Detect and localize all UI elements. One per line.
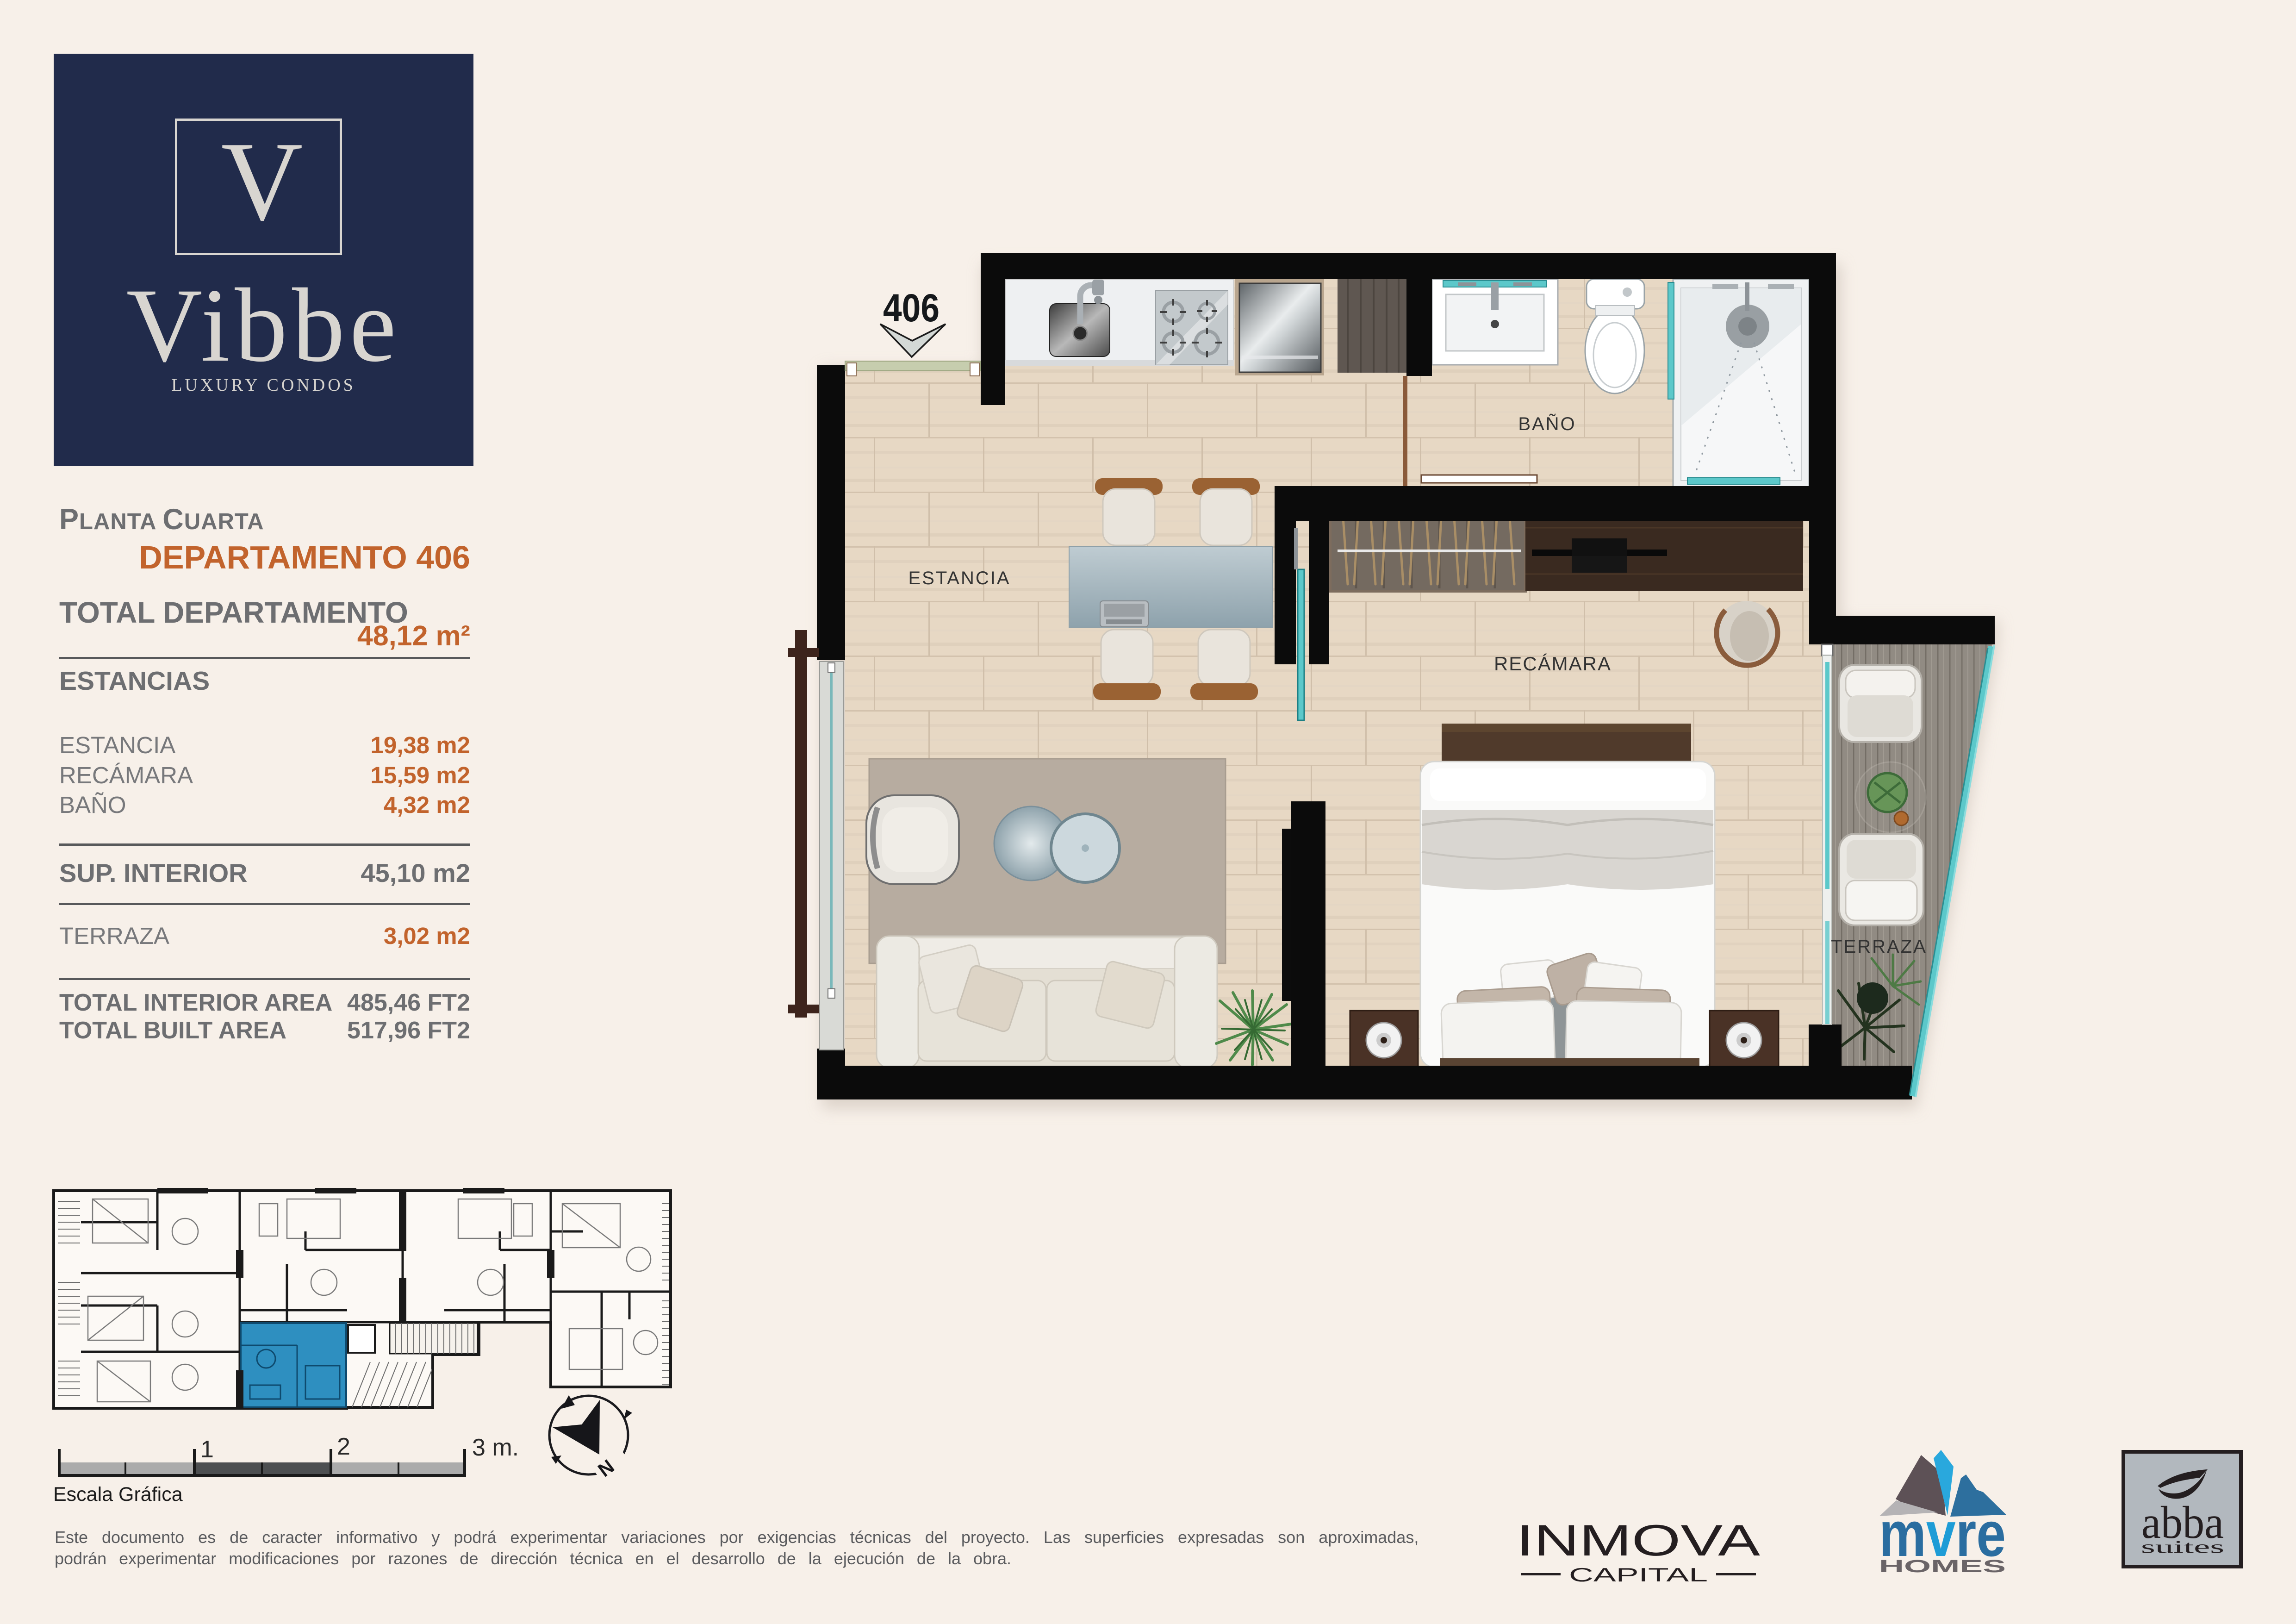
svg-text:TERRAZA: TERRAZA: [1831, 937, 1927, 957]
svg-text:1: 1: [200, 1436, 214, 1463]
svg-text:ESTANCIA: ESTANCIA: [908, 568, 1010, 588]
svg-text:406: 406: [883, 286, 940, 330]
svg-text:HOMES: HOMES: [1879, 1557, 2006, 1576]
svg-text:INMOVA: INMOVA: [1516, 1516, 1761, 1565]
svg-text:RECÁMARA: RECÁMARA: [1494, 653, 1612, 675]
svg-text:3 m.: 3 m.: [472, 1434, 519, 1461]
svg-text:2: 2: [337, 1433, 350, 1460]
svg-text:suites: suites: [2141, 1537, 2224, 1557]
svg-text:CAPITAL: CAPITAL: [1569, 1564, 1708, 1586]
svg-text:BAÑO: BAÑO: [1518, 413, 1576, 434]
